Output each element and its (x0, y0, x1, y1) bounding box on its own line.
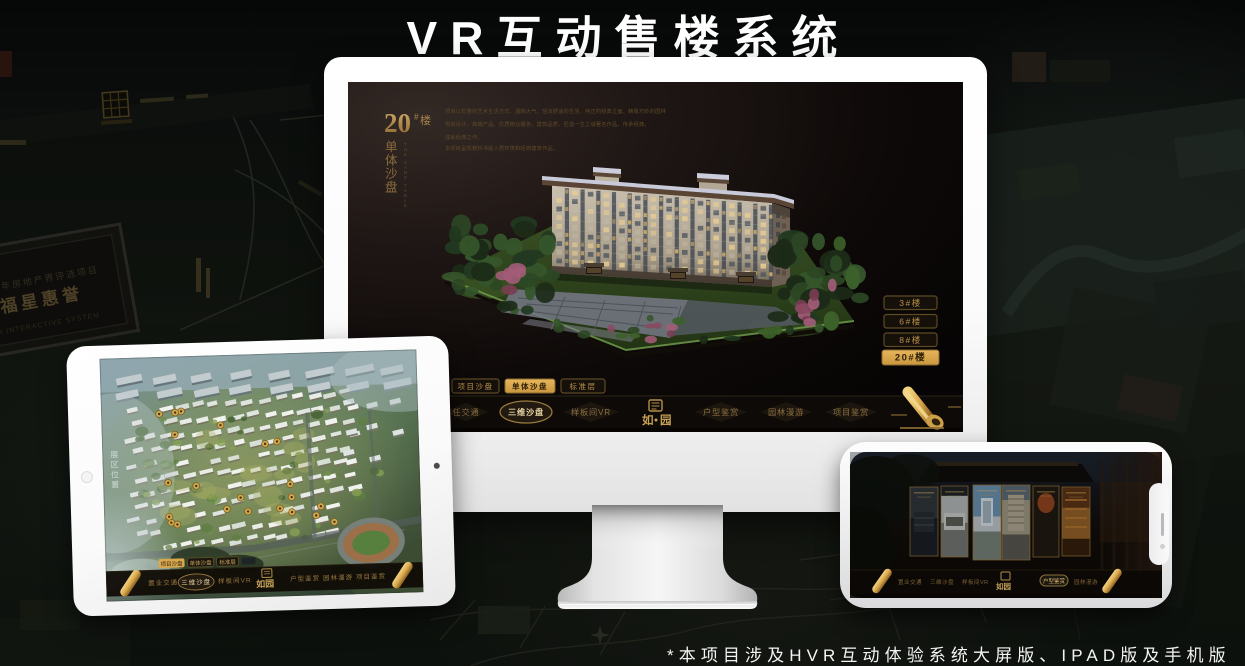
svg-text:单体沙盘: 单体沙盘 (512, 381, 548, 391)
svg-text:#: # (414, 112, 419, 122)
svg-text:三维沙盘: 三维沙盘 (930, 578, 954, 586)
svg-text:3#楼: 3#楼 (899, 298, 921, 308)
svg-text:如园: 如园 (256, 578, 274, 590)
svg-text:规划设计、高端产品、优质物业服务、建筑品质、匠造一生之城著名: 规划设计、高端产品、优质物业服务、建筑品质、匠造一生之城著名作品，传承经典， (445, 120, 650, 128)
svg-text:项目沙盘: 项目沙盘 (458, 381, 494, 391)
svg-text:项目鉴赏: 项目鉴赏 (833, 407, 869, 417)
svg-text:户型鉴赏: 户型鉴赏 (1043, 577, 1066, 585)
svg-text:园林漫游: 园林漫游 (1074, 578, 1098, 586)
svg-text:如: 如 (642, 413, 654, 427)
svg-text:任交通: 任交通 (453, 407, 480, 417)
svg-text:E: E (404, 203, 407, 208)
svg-text:6#楼: 6#楼 (899, 316, 921, 326)
svg-text:样板间VR: 样板间VR (962, 578, 989, 586)
svg-text:E: E (404, 152, 407, 157)
svg-text:D: D (404, 175, 407, 180)
svg-text:项目以优雅的艺术生活方式、温婉大气、恬淡舒适的生活、纯正的经: 项目以优雅的艺术生活方式、温婉大气、恬淡舒适的生活、纯正的经典立面、精致巧妙的园… (445, 107, 667, 115)
svg-text:置业交通: 置业交通 (898, 578, 922, 586)
svg-text:户型鉴赏: 户型鉴赏 (703, 407, 739, 417)
svg-text:楼: 楼 (420, 113, 431, 127)
svg-text:单体沙盘: 单体沙盘 (385, 140, 398, 195)
svg-text:如园: 如园 (996, 581, 1011, 591)
svg-text:本项目呈现教科书般人居环境和经典建筑作品。: 本项目呈现教科书般人居环境和经典建筑作品。 (445, 144, 558, 152)
svg-text:样板间VR: 样板间VR (571, 407, 611, 417)
svg-text:20: 20 (384, 108, 411, 138)
svg-text:园林漫游: 园林漫游 (768, 407, 804, 417)
svg-text:20#楼: 20#楼 (895, 352, 926, 364)
svg-text:标准层: 标准层 (570, 381, 597, 391)
svg-text:三维沙盘: 三维沙盘 (508, 407, 544, 417)
svg-text:展区位置: 展区位置 (110, 450, 120, 490)
svg-text:成就经典之作。: 成就经典之作。 (445, 133, 483, 141)
svg-text:8#楼: 8#楼 (899, 335, 921, 345)
svg-text:园: 园 (660, 413, 672, 427)
